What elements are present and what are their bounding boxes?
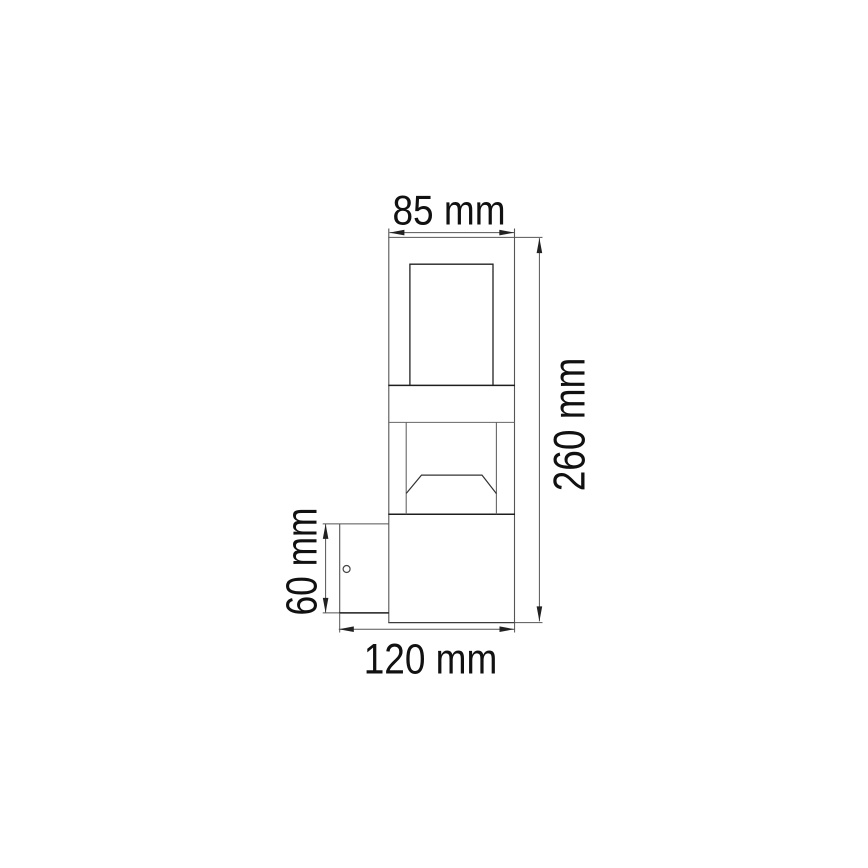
svg-text:260 mm: 260 mm [544, 358, 594, 492]
svg-text:120 mm: 120 mm [364, 636, 498, 683]
svg-text:85 mm: 85 mm [392, 188, 505, 234]
svg-text:60 mm: 60 mm [278, 508, 326, 616]
